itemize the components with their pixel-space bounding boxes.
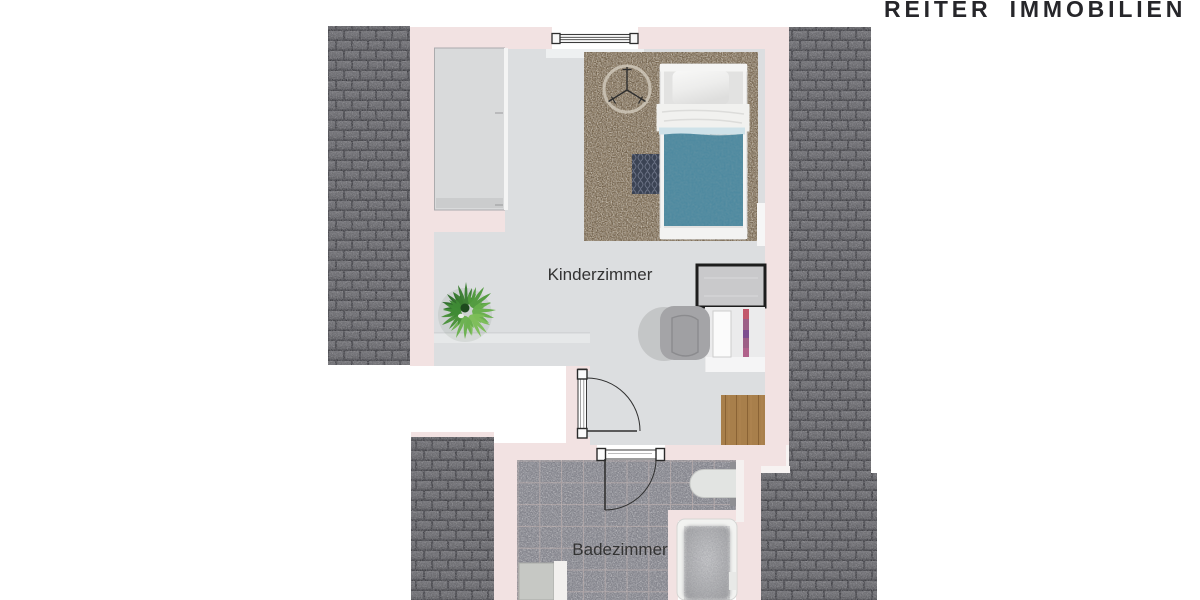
- svg-text:Badezimmer: Badezimmer: [572, 540, 668, 559]
- svg-text:Kinderzimmer: Kinderzimmer: [548, 265, 653, 284]
